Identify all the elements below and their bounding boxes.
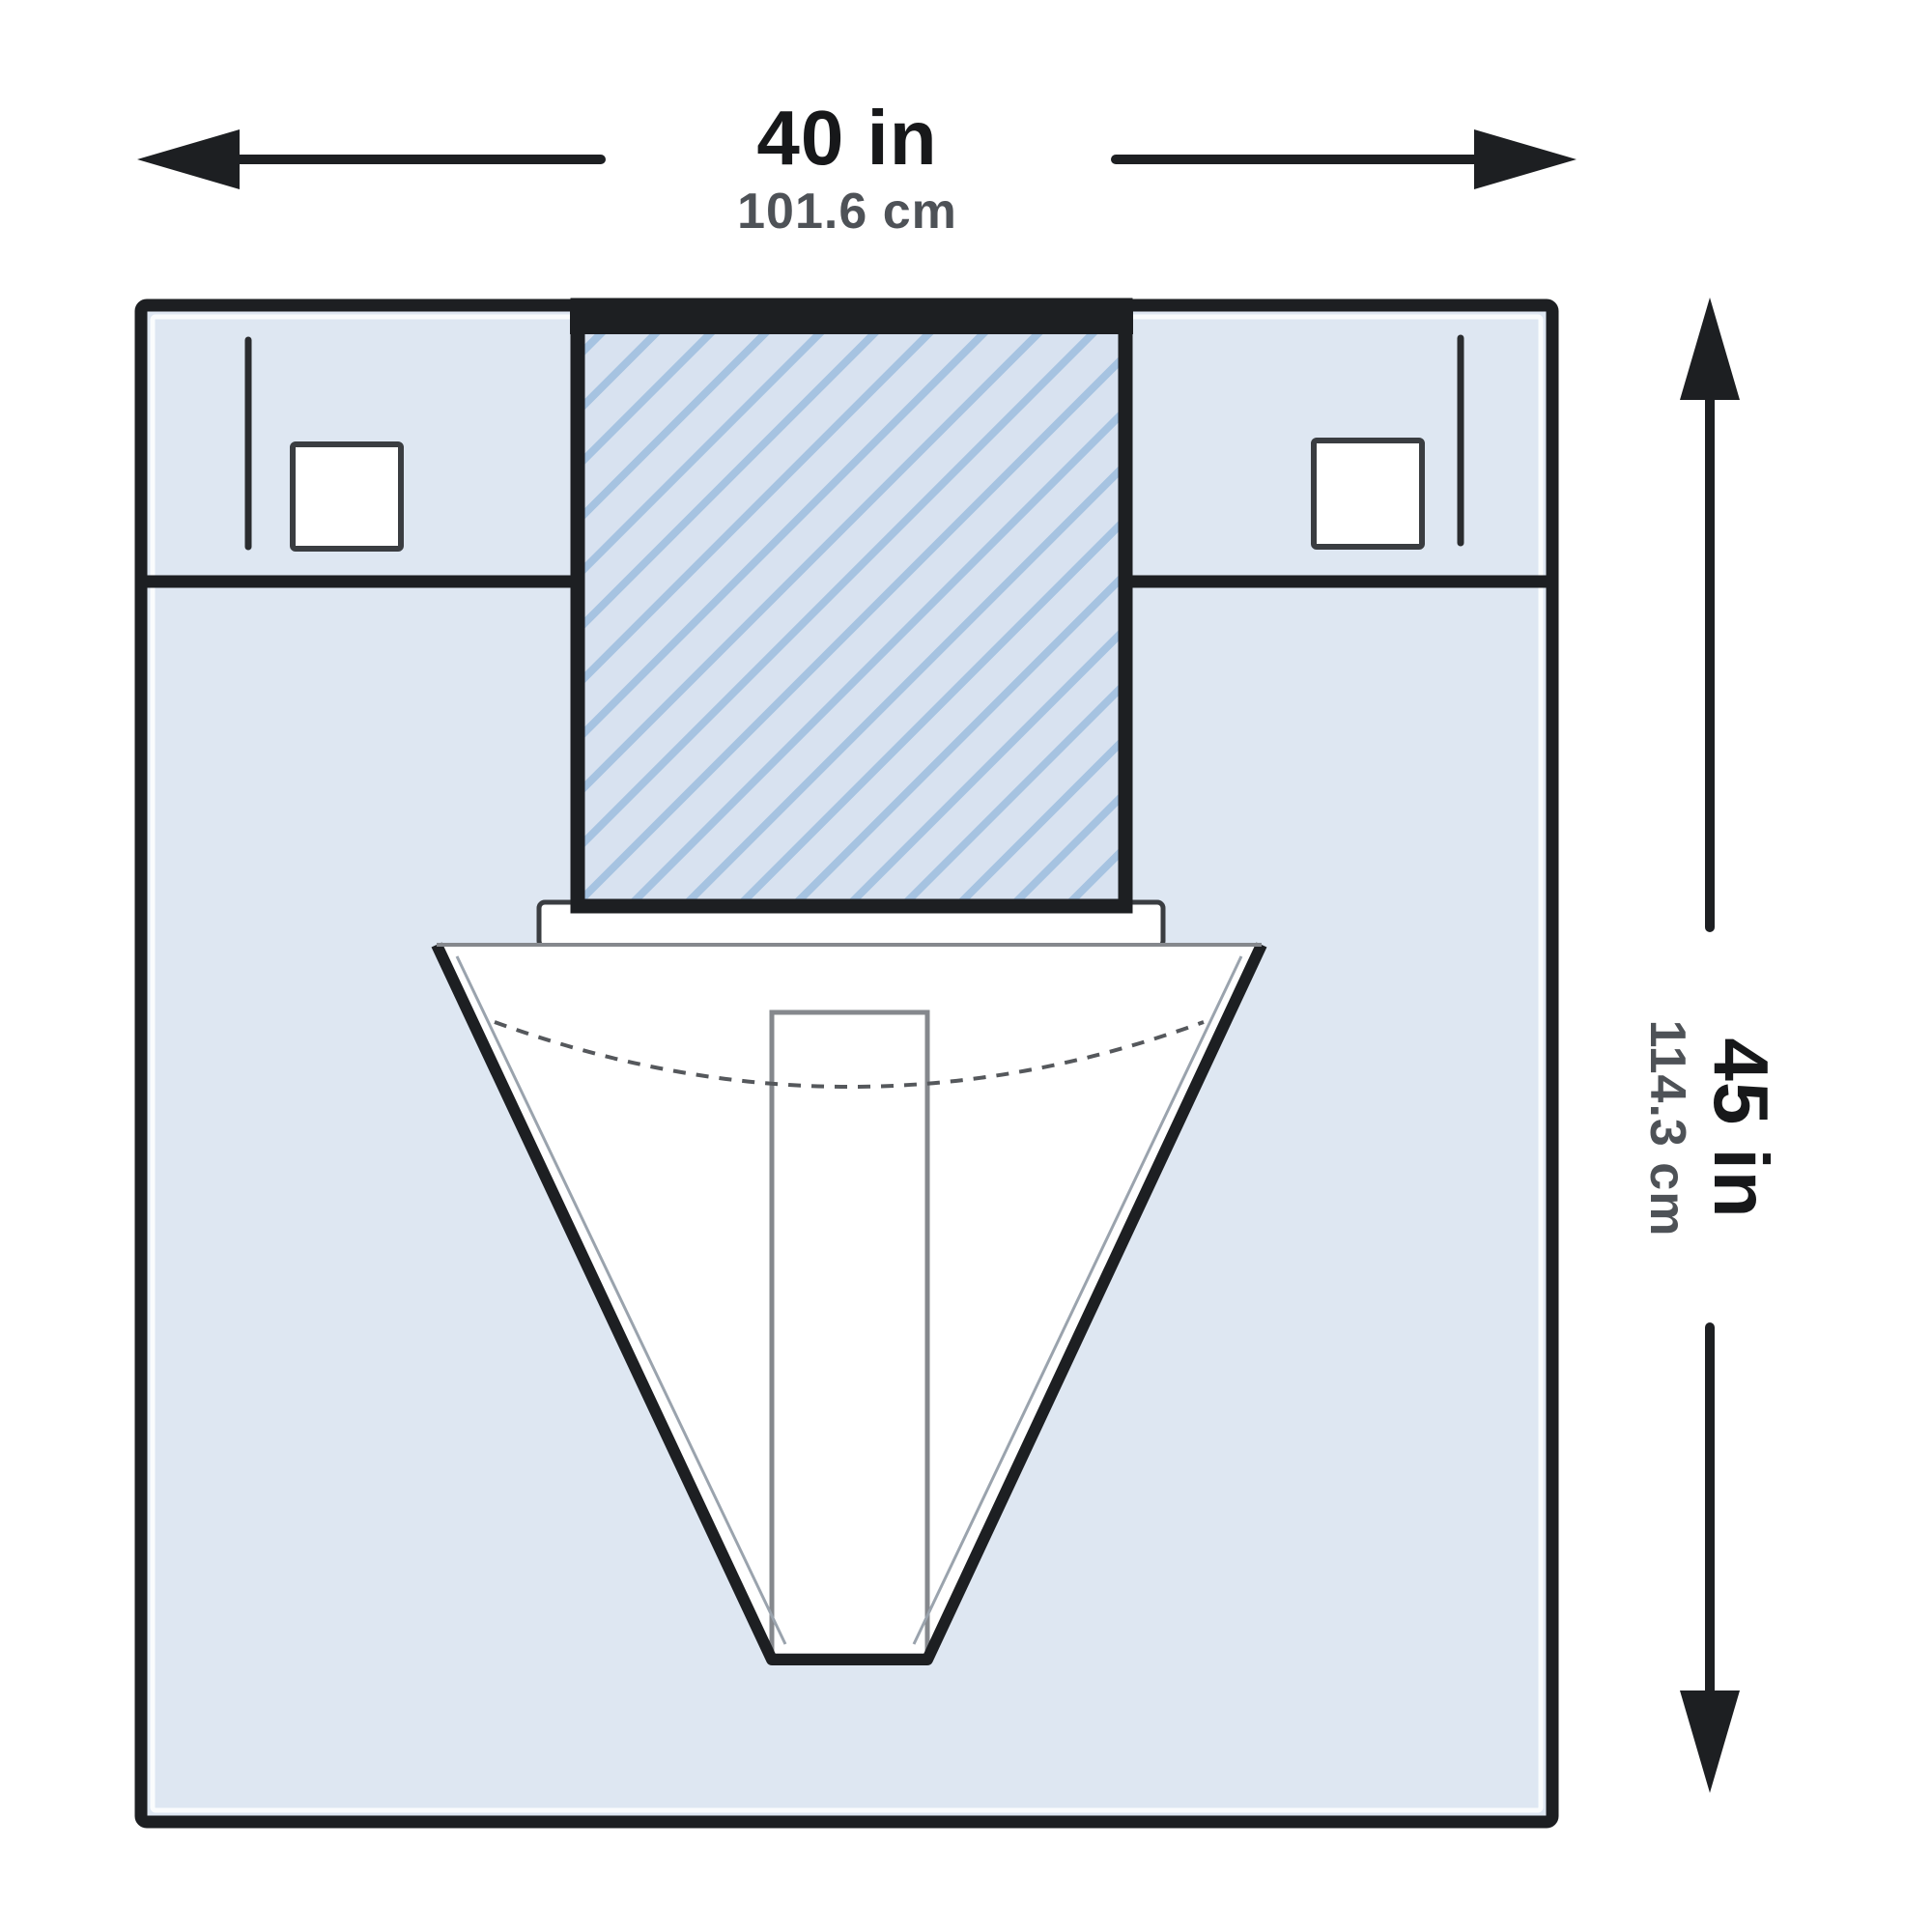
tape-tab-left — [293, 444, 401, 549]
tape-tab-right — [1314, 440, 1422, 547]
incise-hatch-area — [578, 305, 1125, 906]
height-label-block: 45 in 114.3 cm — [1639, 1020, 1784, 1237]
drain-tube-channel — [772, 1012, 927, 1656]
diagram-stage: 40 in 101.6 cm 45 in 114.3 cm — [0, 0, 1932, 1932]
drape-dimension-diagram: 40 in 101.6 cm 45 in 114.3 cm — [0, 0, 1932, 1932]
width-value-centimeters: 101.6 cm — [737, 184, 957, 240]
height-value-centimeters: 114.3 cm — [1639, 1020, 1695, 1237]
hatch-top-band — [570, 301, 1133, 334]
width-value-inches: 40 in — [756, 95, 937, 181]
height-value-inches: 45 in — [1698, 1037, 1784, 1218]
